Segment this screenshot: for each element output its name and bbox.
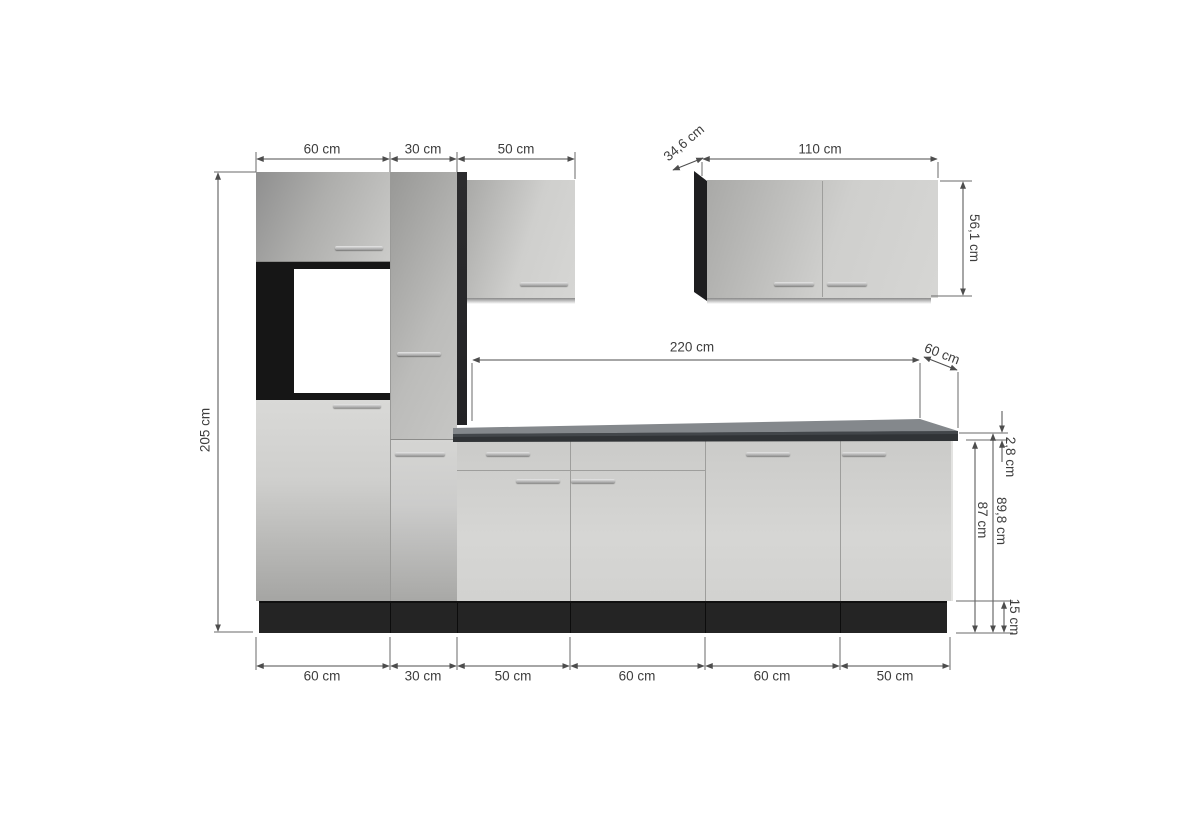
dimension-bottom-widths [256, 637, 950, 670]
dimension-total-height [214, 172, 256, 632]
dim-label-bottom-60c: 60 cm [754, 669, 791, 683]
wall-cabinet-right-side-panel [694, 171, 707, 301]
kitchen-dimension-diagram: 60 cm 30 cm 50 cm 34,6 cm 110 cm 56,1 cm… [0, 0, 1200, 817]
dim-label-bottom-30: 30 cm [405, 669, 442, 683]
dim-label-total-height: 205 cm [198, 408, 212, 452]
dim-label-bottom-60a: 60 cm [304, 669, 341, 683]
dimension-countertop [472, 357, 958, 428]
dim-label-top-50: 50 cm [498, 142, 535, 156]
countertop [453, 419, 958, 442]
dimension-overlay [0, 0, 1200, 817]
dim-label-top-60: 60 cm [304, 142, 341, 156]
dim-label-bottom-60b: 60 cm [619, 669, 656, 683]
dim-label-bottom-50b: 50 cm [877, 669, 914, 683]
dim-label-plinth-height: 15 cm [1007, 599, 1021, 636]
dimension-wall-cabinet-right [673, 158, 972, 296]
dim-label-counter-thickness: 2,8 cm [1003, 437, 1017, 478]
dim-label-worktop-total: 89,8 cm [994, 497, 1008, 545]
dim-label-base-height: 87 cm [975, 502, 989, 539]
dim-label-counter-width: 220 cm [670, 340, 714, 354]
dim-label-wallcab-width: 110 cm [798, 142, 841, 156]
dim-label-bottom-50a: 50 cm [495, 669, 532, 683]
dim-label-top-30: 30 cm [405, 142, 442, 156]
dim-label-wallcab-height: 56,1 cm [967, 214, 981, 262]
